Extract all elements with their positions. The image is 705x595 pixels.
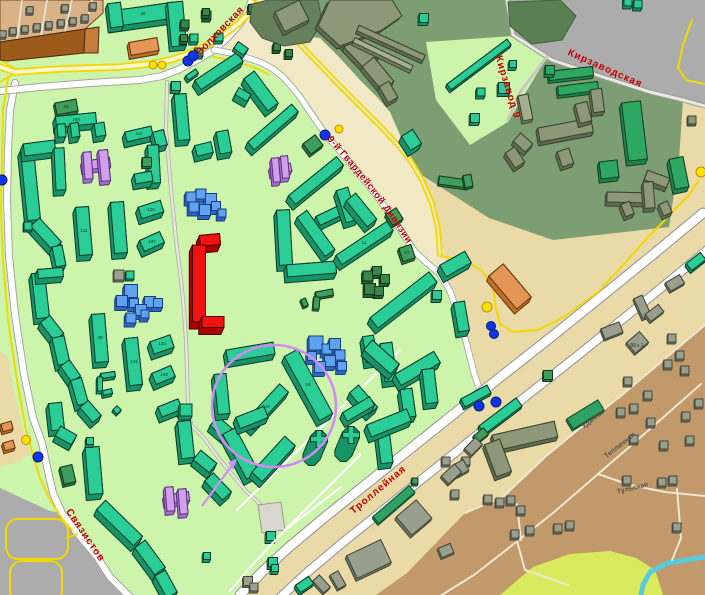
svg-text:141: 141 (130, 359, 138, 364)
svg-text:32: 32 (63, 104, 69, 109)
svg-text:16: 16 (305, 382, 311, 387)
svg-text:108: 108 (72, 117, 80, 122)
svg-text:39: 39 (140, 11, 146, 16)
svg-text:126: 126 (147, 207, 155, 212)
svg-text:11: 11 (362, 240, 367, 245)
svg-text:67: 67 (404, 250, 410, 255)
svg-text:111: 111 (136, 131, 143, 136)
svg-text:38: 38 (97, 335, 103, 340)
svg-text:211: 211 (80, 228, 88, 233)
svg-text:143: 143 (158, 341, 166, 346)
svg-text:137: 137 (148, 239, 156, 244)
svg-text:88 к 1: 88 к 1 (630, 343, 644, 349)
svg-text:149: 149 (160, 372, 168, 377)
